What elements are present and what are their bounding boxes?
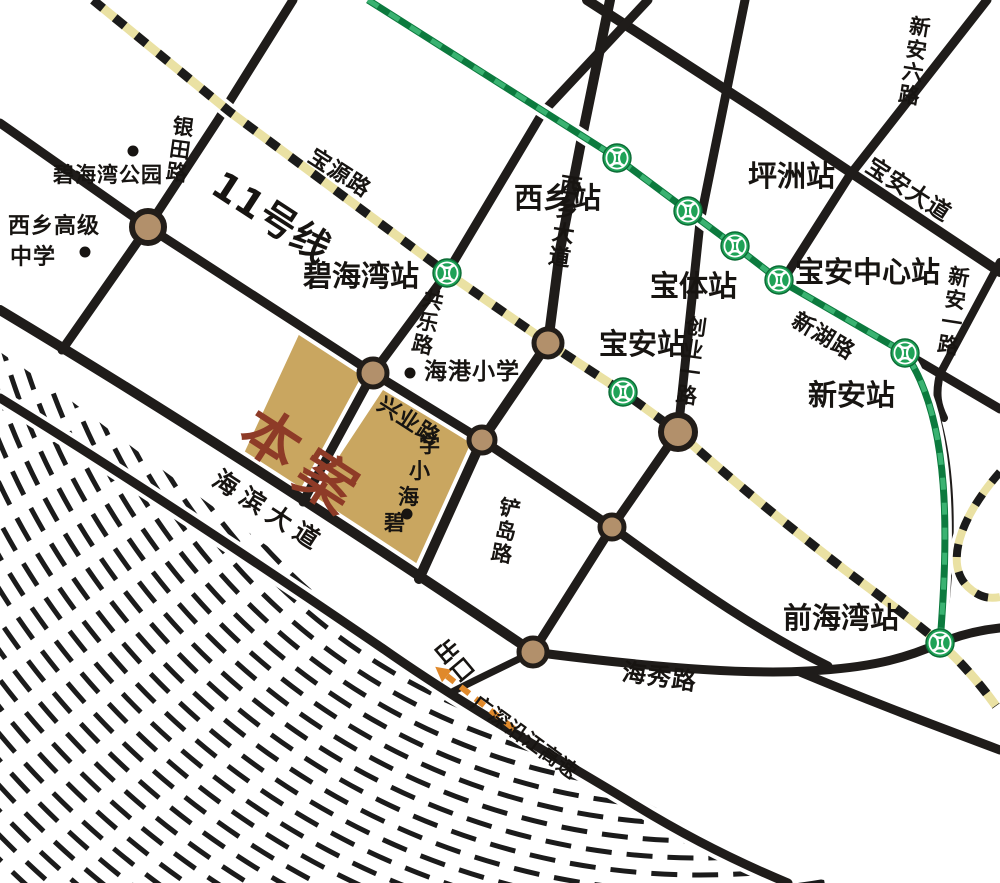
junction-circle xyxy=(534,329,562,357)
junction-circle xyxy=(661,415,695,449)
station-icon-xinan xyxy=(891,339,919,367)
junction-circle xyxy=(359,359,387,387)
junction-circle xyxy=(132,211,164,243)
poi-dot xyxy=(80,247,91,258)
junction-circle xyxy=(600,515,624,539)
water-hatch xyxy=(0,0,1000,883)
junction-circle xyxy=(519,638,547,666)
poi-dot xyxy=(405,368,416,379)
station-icon-xixiang xyxy=(603,144,631,172)
station-icon-bihaiwan xyxy=(433,259,461,287)
poi-dot xyxy=(402,509,413,520)
poi-dot xyxy=(128,146,139,157)
metro-line-11-outer-arc xyxy=(957,472,1000,598)
road-baoan-avenue xyxy=(587,0,1000,272)
station-icon-baoan-center xyxy=(765,266,793,294)
station-icon-qianhaiwan xyxy=(926,629,954,657)
junction-circle xyxy=(469,427,495,453)
road-casings xyxy=(0,0,1000,883)
roads xyxy=(0,0,1000,883)
transit-location-map: 11号线宝源路银田路碧海湾公园西乡高级中学共乐路西乡大道海港小学兴业路碧海小学海… xyxy=(0,0,1000,883)
map-canvas xyxy=(0,0,1000,883)
station-icon-baoan xyxy=(609,378,637,406)
station-icon-baoti xyxy=(721,232,749,260)
metro-line-1 xyxy=(368,0,945,643)
station-icon-pingzhou xyxy=(674,197,702,225)
